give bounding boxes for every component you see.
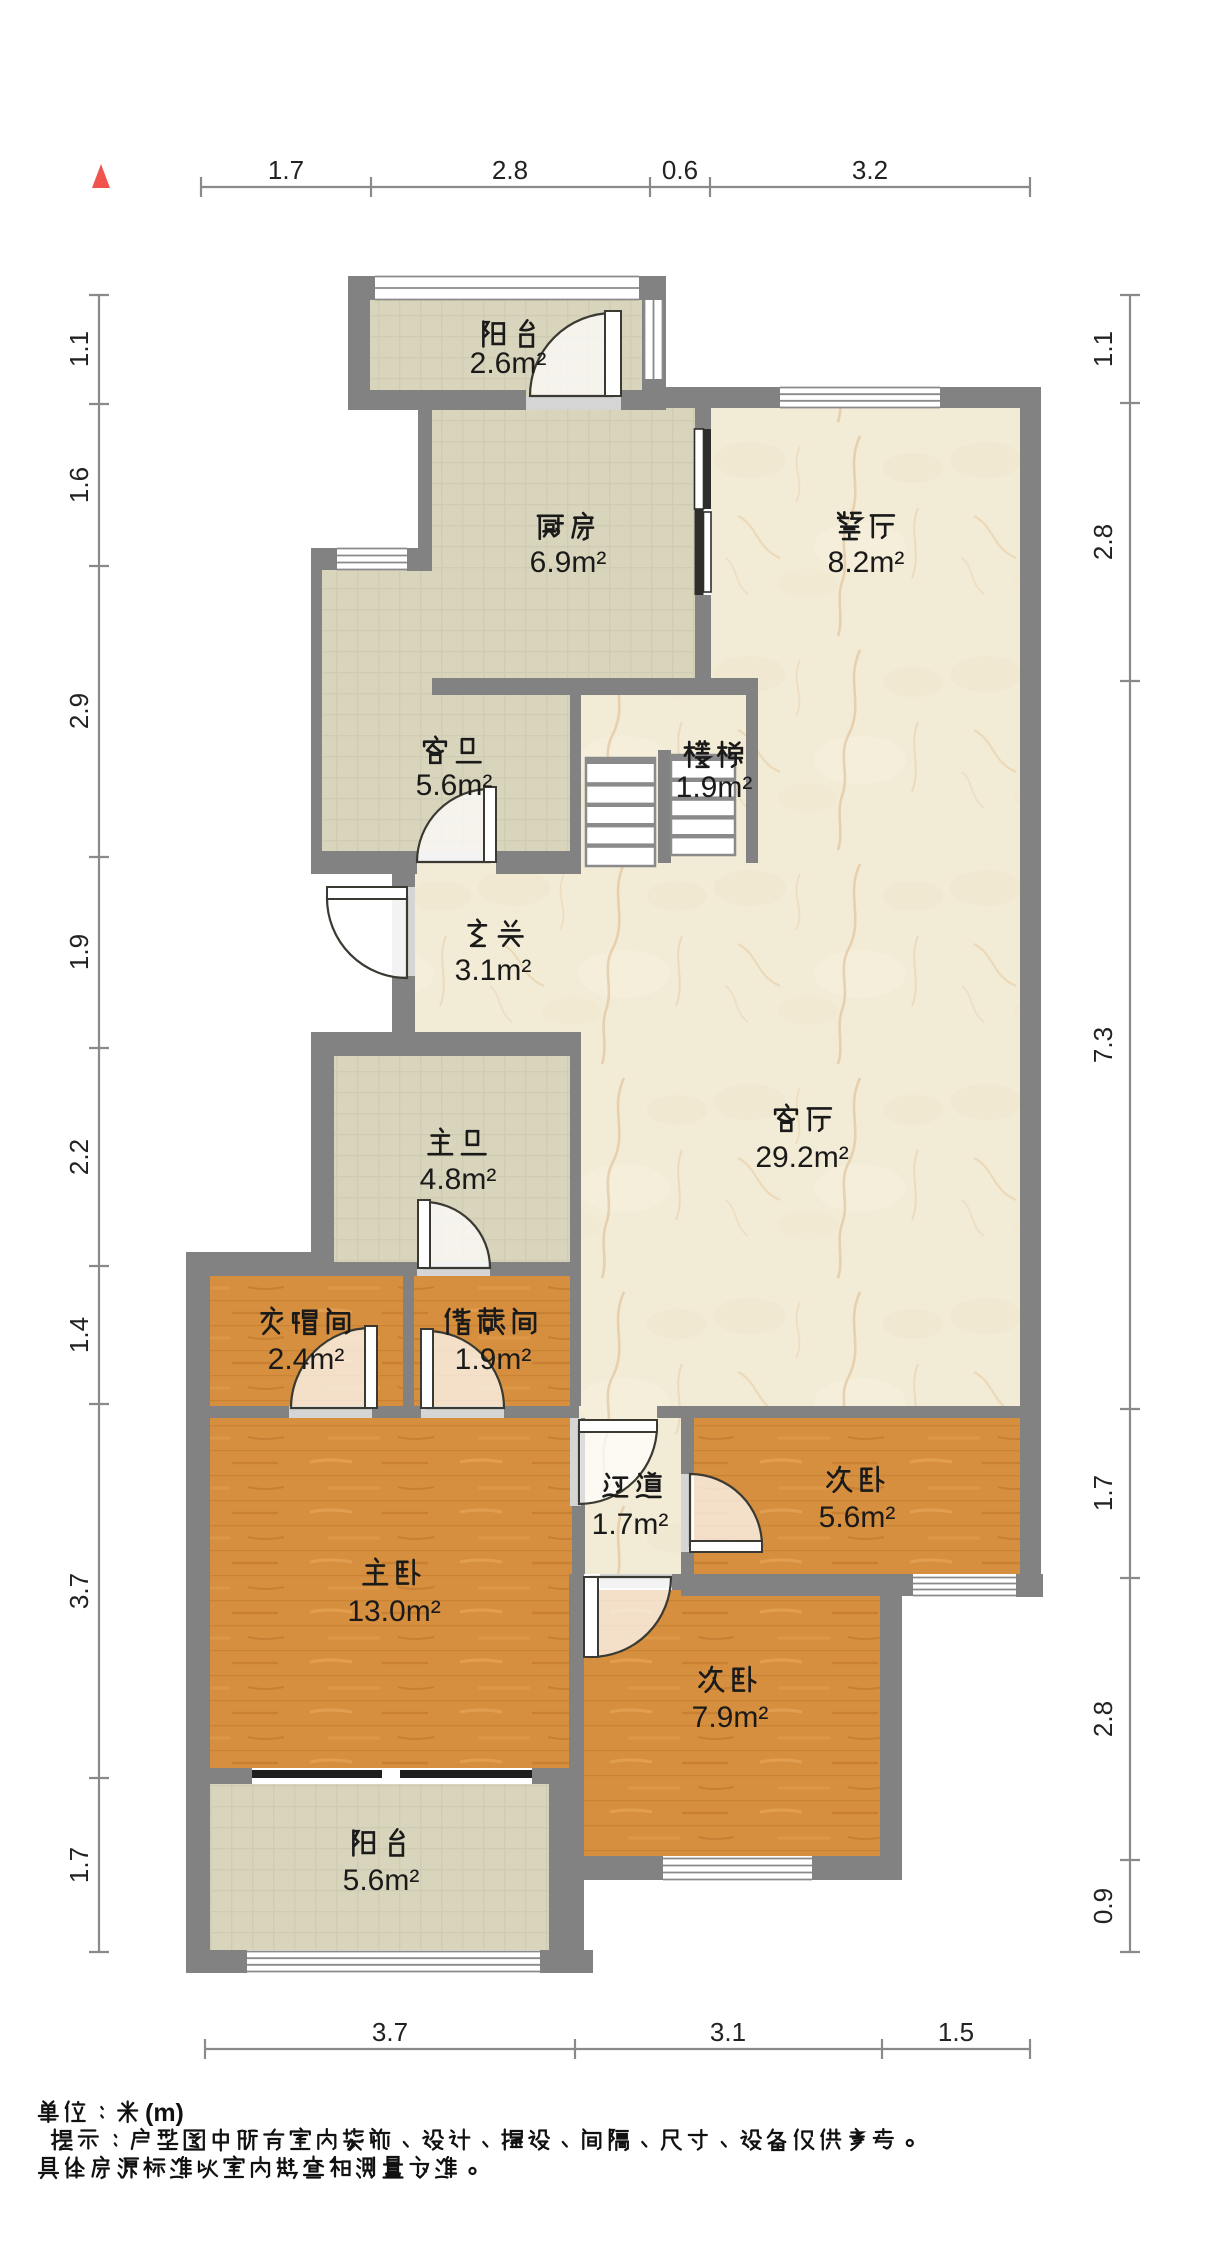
svg-text:1.9m²: 1.9m² xyxy=(455,1343,532,1376)
svg-text:3.1: 3.1 xyxy=(710,2017,746,2047)
svg-text:2.4m²: 2.4m² xyxy=(268,1343,345,1376)
svg-text:3.7: 3.7 xyxy=(372,2017,408,2047)
svg-text:5.6m²: 5.6m² xyxy=(343,1864,420,1897)
svg-text:1.5: 1.5 xyxy=(938,2017,974,2047)
svg-text:1.9m²: 1.9m² xyxy=(676,771,753,804)
svg-text:1.7m²: 1.7m² xyxy=(592,1508,669,1541)
svg-text:1.4: 1.4 xyxy=(64,1317,94,1353)
svg-text:1.6: 1.6 xyxy=(64,467,94,503)
svg-text:4.8m²: 4.8m² xyxy=(420,1163,497,1196)
svg-text:29.2m²: 29.2m² xyxy=(755,1141,848,1174)
svg-text:7.9m²: 7.9m² xyxy=(692,1701,769,1734)
svg-text:8.2m²: 8.2m² xyxy=(828,546,905,579)
svg-text:13.0m²: 13.0m² xyxy=(347,1595,440,1628)
svg-text:1.7: 1.7 xyxy=(1088,1475,1118,1511)
svg-text:2.6m²: 2.6m² xyxy=(470,347,547,380)
svg-text:2.8: 2.8 xyxy=(1088,1701,1118,1737)
svg-text:2.2: 2.2 xyxy=(64,1139,94,1175)
svg-text:2.9: 2.9 xyxy=(64,693,94,729)
svg-text:2.8: 2.8 xyxy=(1088,524,1118,560)
svg-text:1.7: 1.7 xyxy=(64,1847,94,1883)
svg-text:2.8: 2.8 xyxy=(492,155,528,185)
svg-text:5.6m²: 5.6m² xyxy=(819,1501,896,1534)
svg-text:3.1m²: 3.1m² xyxy=(455,954,532,987)
svg-text:0.9: 0.9 xyxy=(1088,1888,1118,1924)
svg-text:(m): (m) xyxy=(145,2099,184,2127)
svg-text:1.9: 1.9 xyxy=(64,934,94,970)
svg-text:3.2: 3.2 xyxy=(852,155,888,185)
svg-text:7.3: 7.3 xyxy=(1088,1027,1118,1063)
svg-text:5.6m²: 5.6m² xyxy=(416,769,493,802)
svg-text:3.7: 3.7 xyxy=(64,1573,94,1609)
svg-text:1.7: 1.7 xyxy=(268,155,304,185)
svg-text:0.6: 0.6 xyxy=(662,155,698,185)
svg-text:6.9m²: 6.9m² xyxy=(530,546,607,579)
svg-text:1.1: 1.1 xyxy=(64,331,94,367)
svg-text:1.1: 1.1 xyxy=(1088,331,1118,367)
